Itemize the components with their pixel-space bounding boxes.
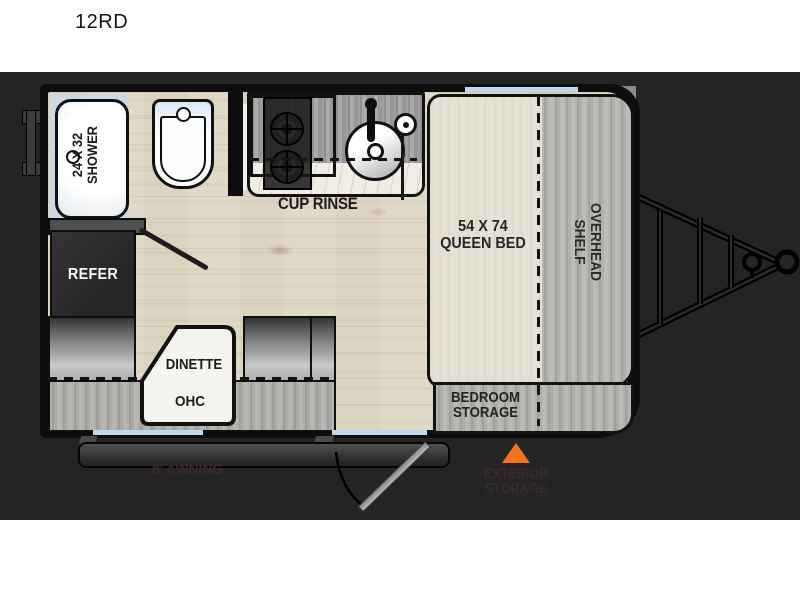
partition-wall — [228, 92, 243, 196]
cup-rinse-label: CUP RINSE — [278, 194, 358, 214]
hitch-a-frame — [630, 180, 800, 350]
cup-rinse-pointer — [401, 133, 404, 200]
overhead-shelf-label: OVERHEAD SHELF — [565, 187, 603, 297]
faucet — [367, 106, 375, 142]
toilet-flush-button — [176, 107, 191, 122]
dinette-bench-right — [243, 316, 336, 386]
bed-divider-dashline — [537, 96, 540, 426]
cup-rinse-fixture — [394, 113, 417, 136]
bedroom-storage-label: BEDROOM STORAGE — [439, 390, 531, 420]
dinette-window — [93, 430, 203, 435]
toilet-bowl — [160, 116, 206, 182]
toilet — [152, 99, 214, 189]
ohc-label: OHC — [161, 393, 219, 410]
shower-label: 24 X 32 SHOWER — [70, 100, 108, 210]
burner-icon — [270, 150, 304, 184]
faucet-head — [365, 98, 377, 110]
refer-label: REFER — [56, 266, 130, 284]
burner-icon — [270, 112, 304, 146]
bedroom-window — [465, 87, 578, 92]
awning-label: 8' AWNING — [152, 461, 223, 478]
model-title: 12RD — [75, 11, 128, 34]
hitch-coupler — [777, 252, 797, 272]
refrigerator: REFER — [50, 230, 136, 320]
exterior-storage-marker-icon — [502, 443, 530, 463]
floorplan-page: 12RD 24 X 32 SHOWER — [0, 0, 800, 600]
awning — [78, 442, 450, 468]
dinette-table — [138, 323, 238, 431]
dinette-label: DINETTE — [162, 356, 225, 373]
rear-bumper-bar — [26, 110, 36, 176]
entry-door-window — [332, 430, 427, 435]
tongue-jack — [744, 254, 760, 270]
queen-bed-label: 54 X 74 QUEEN BED — [433, 218, 534, 252]
overhead-cabinet-dashline — [250, 158, 417, 161]
exterior-storage-label: EXTERIOR STORAGE — [475, 466, 558, 496]
dinette-bench-left — [48, 316, 136, 386]
